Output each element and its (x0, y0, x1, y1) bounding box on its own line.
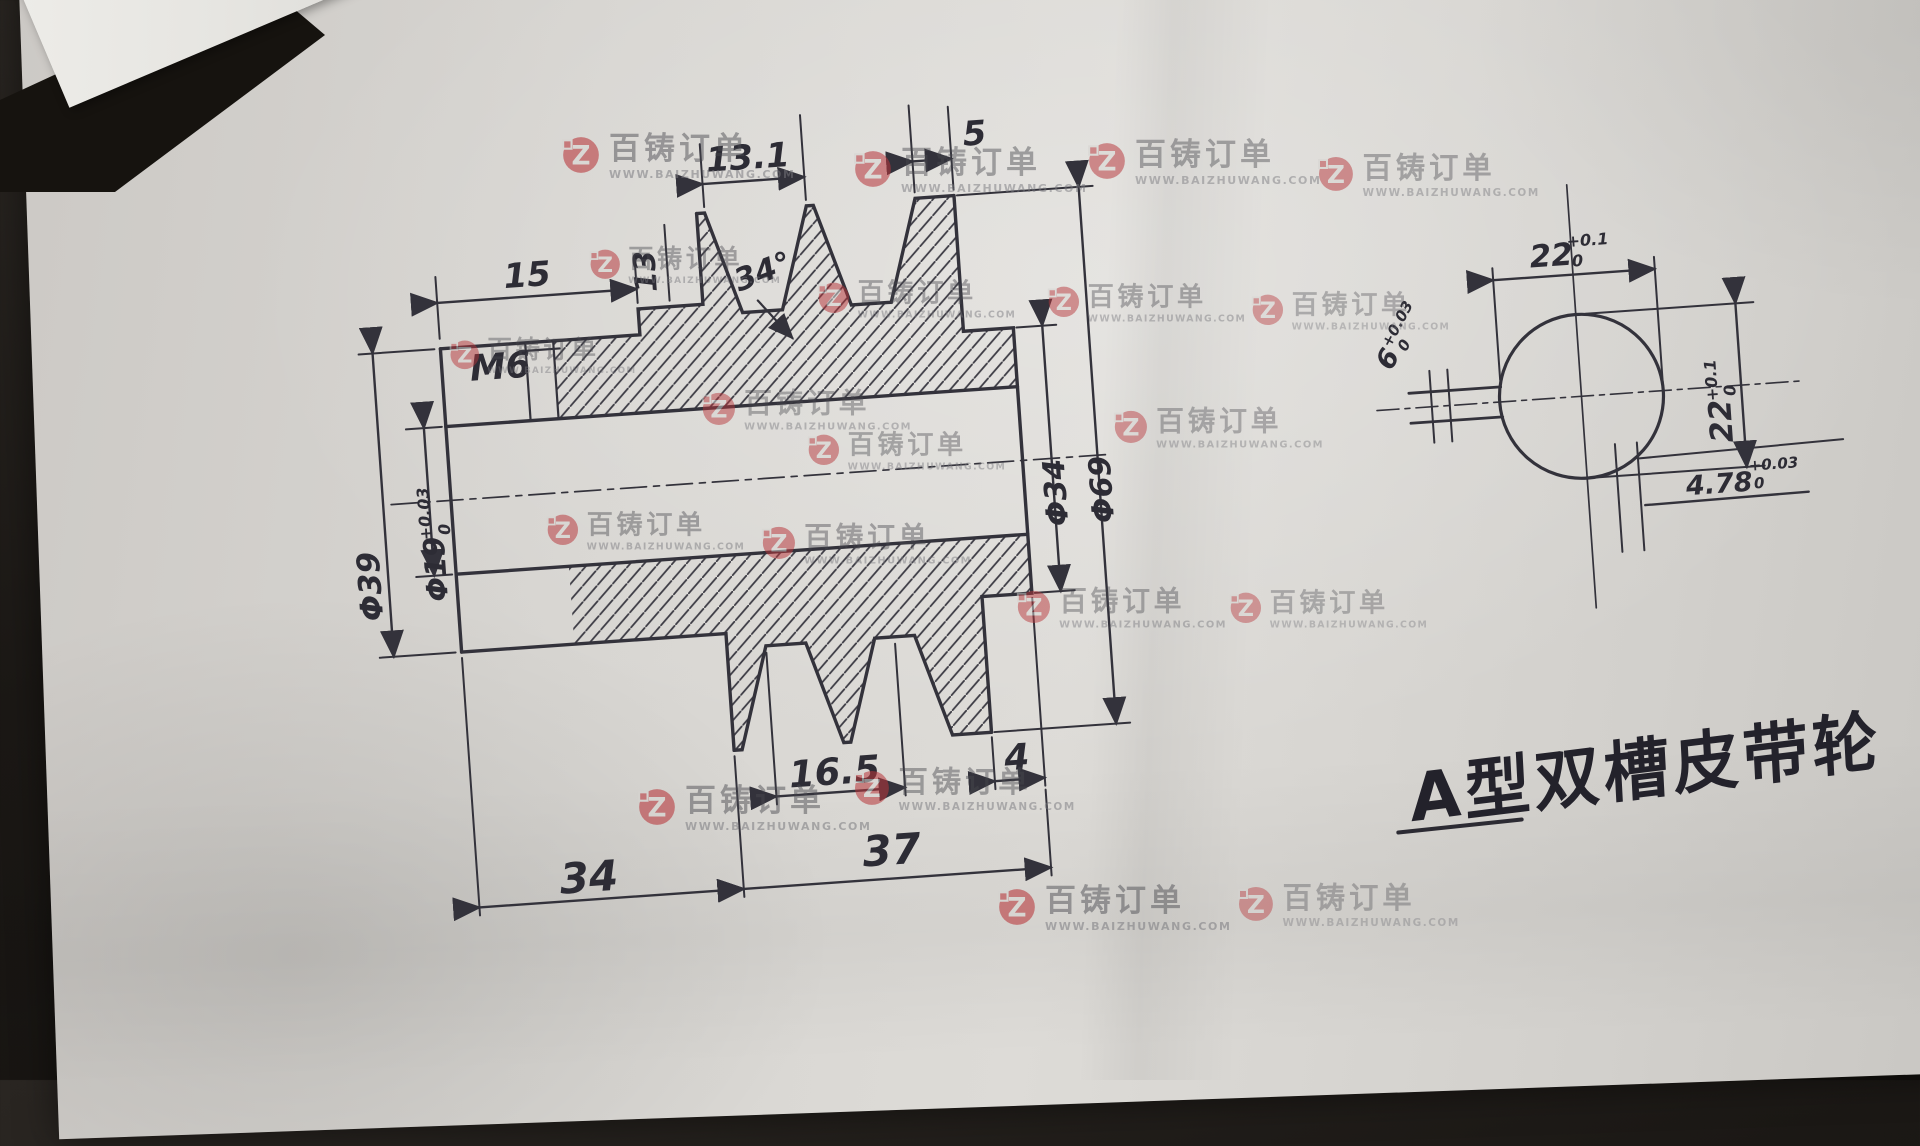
dim-13: 13 (625, 225, 669, 304)
svg-text:4.78: 4.78 (1684, 467, 1754, 503)
svg-text:0: 0 (435, 523, 455, 535)
svg-text:+0.03: +0.03 (1748, 453, 1799, 474)
svg-text:Φ34: Φ34 (1037, 458, 1077, 528)
svg-text:+0.1: +0.1 (1566, 229, 1609, 251)
svg-text:+0.1: +0.1 (1700, 359, 1722, 402)
dim-15: 15 (434, 248, 639, 339)
label-m6: M6 (468, 345, 532, 390)
dim-4-78: 4.78 +0.03 0 (1615, 428, 1850, 552)
svg-text:22: 22 (1702, 398, 1741, 444)
hatch-upper (545, 192, 1017, 419)
side-view: 22 +0.1 0 22 +0.1 0 6 +0.03 0 (1357, 167, 1853, 623)
dim-13-1: 13.1 (698, 115, 806, 207)
hatch-lower (569, 534, 1041, 761)
dim-4: 4 (982, 598, 1045, 789)
svg-text:0: 0 (1394, 336, 1415, 354)
svg-text:0: 0 (1720, 384, 1740, 396)
svg-text:5: 5 (961, 113, 987, 155)
svg-text:Φ69: Φ69 (1083, 455, 1123, 525)
dim-5: 5 (909, 100, 991, 192)
svg-text:16.5: 16.5 (787, 747, 881, 796)
svg-text:13: 13 (627, 249, 665, 293)
svg-text:+0.03: +0.03 (413, 487, 436, 541)
svg-text:37: 37 (861, 823, 923, 876)
main-section-view: 15 M6 13 13.1 5 34° (322, 93, 1146, 923)
svg-text:Φ39: Φ39 (350, 551, 391, 623)
svg-text:4: 4 (1002, 737, 1031, 780)
svg-text:34: 34 (558, 851, 620, 904)
svg-text:0: 0 (1753, 474, 1765, 493)
svg-text:Φ19: Φ19 (417, 536, 455, 603)
svg-text:0: 0 (1571, 251, 1583, 271)
bore-centerline (391, 454, 1111, 504)
svg-text:13.1: 13.1 (705, 135, 791, 181)
photo-of-drawing: { "drawing": { "title": "A型双槽皮带轮", "main… (0, 0, 1920, 1080)
engineering-drawing: 15 M6 13 13.1 5 34° (0, 0, 1920, 1146)
dim-6-keyway: 6 +0.03 0 (1364, 295, 1452, 447)
svg-text:15: 15 (502, 254, 552, 297)
dim-22-right: 22 +0.1 0 (1586, 302, 1765, 477)
